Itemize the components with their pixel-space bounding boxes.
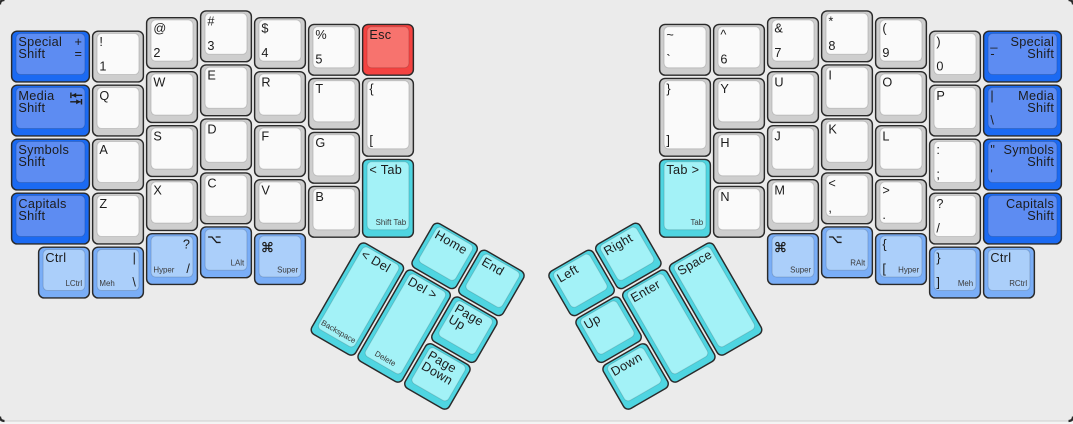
svg-text:Ctrl: Ctrl — [990, 251, 1011, 265]
svg-text:-: - — [990, 47, 995, 61]
svg-text:E: E — [207, 69, 216, 83]
svg-text:Tab: Tab — [690, 218, 703, 227]
svg-text:Ctrl: Ctrl — [45, 251, 66, 265]
svg-text:/: / — [186, 262, 190, 276]
svg-text:P: P — [936, 89, 945, 103]
svg-text:2: 2 — [153, 46, 160, 60]
svg-text:I: I — [828, 69, 832, 83]
svg-text:3: 3 — [207, 39, 214, 53]
svg-text:N: N — [720, 190, 729, 204]
svg-text:[: [ — [369, 134, 373, 148]
svg-text:#: # — [207, 15, 214, 29]
svg-text:J: J — [774, 129, 781, 143]
svg-text:O: O — [882, 75, 892, 89]
svg-text:Shift: Shift — [18, 155, 45, 169]
svg-text:7: 7 — [774, 46, 781, 60]
svg-text:<: < — [828, 177, 836, 191]
svg-text:RAlt: RAlt — [850, 259, 866, 268]
svg-text:!: ! — [99, 35, 103, 49]
svg-text:(: ( — [882, 21, 887, 35]
svg-text:4: 4 — [261, 46, 268, 60]
svg-text:< Tab: < Tab — [369, 163, 402, 177]
svg-text:Q: Q — [99, 89, 109, 103]
svg-text:Meh: Meh — [958, 279, 973, 288]
svg-text:[: [ — [882, 262, 886, 276]
svg-text:C: C — [207, 177, 216, 191]
svg-text:\: \ — [990, 113, 994, 127]
svg-text:}: } — [936, 251, 941, 265]
svg-text:Shift: Shift — [18, 47, 45, 61]
svg-text:?: ? — [936, 197, 943, 211]
svg-text:L: L — [882, 129, 889, 143]
svg-text:~: ~ — [666, 28, 674, 42]
svg-text:/: / — [936, 221, 940, 235]
svg-text:*: * — [828, 15, 833, 29]
svg-text:R: R — [261, 75, 270, 89]
svg-text:`: ` — [666, 53, 671, 67]
svg-text:Meh: Meh — [99, 279, 114, 288]
svg-text:B: B — [315, 190, 324, 204]
svg-text:{: { — [882, 237, 887, 251]
svg-text:Y: Y — [720, 82, 729, 96]
svg-text:LCtrl: LCtrl — [66, 279, 83, 288]
svg-text:H: H — [720, 136, 729, 150]
svg-text:Super: Super — [277, 265, 298, 274]
svg-text:LAlt: LAlt — [231, 259, 245, 268]
svg-text:G: G — [315, 136, 325, 150]
svg-text:?: ? — [183, 237, 190, 251]
svg-text:]: ] — [666, 134, 670, 148]
svg-text:|: | — [133, 251, 137, 265]
svg-text:6: 6 — [720, 53, 727, 67]
svg-text:{: { — [369, 82, 374, 96]
svg-text:=: = — [74, 47, 82, 61]
svg-text:,: , — [828, 201, 832, 215]
svg-text:A: A — [99, 143, 108, 157]
svg-text:%: % — [315, 28, 327, 42]
svg-text:}: } — [666, 82, 671, 96]
svg-text:Shift: Shift — [18, 209, 45, 223]
svg-text:W: W — [153, 75, 165, 89]
svg-text:Shift: Shift — [18, 101, 45, 115]
svg-text:": " — [990, 143, 995, 157]
svg-text:.: . — [882, 208, 886, 222]
svg-text:1: 1 — [99, 59, 106, 73]
svg-text:Hyper: Hyper — [898, 265, 919, 274]
svg-text:K: K — [828, 123, 837, 137]
svg-text:Shift Tab: Shift Tab — [376, 218, 407, 227]
svg-text:Hyper: Hyper — [153, 265, 174, 274]
svg-text:V: V — [261, 183, 270, 197]
svg-text:M: M — [774, 183, 785, 197]
svg-text:': ' — [990, 167, 993, 181]
svg-text:Esc: Esc — [369, 28, 391, 42]
svg-text:X: X — [153, 183, 162, 197]
svg-text:]: ] — [936, 275, 940, 289]
svg-text:>: > — [882, 183, 890, 197]
svg-text:|: | — [990, 89, 994, 103]
svg-text:Shift: Shift — [1027, 155, 1054, 169]
svg-text:9: 9 — [882, 46, 889, 60]
svg-text:\: \ — [132, 275, 136, 289]
svg-text:Shift: Shift — [1027, 101, 1054, 115]
svg-text:T: T — [315, 82, 323, 96]
svg-text:Super: Super — [790, 265, 811, 274]
svg-text:8: 8 — [828, 39, 835, 53]
svg-text:): ) — [936, 35, 941, 49]
svg-text:Tab >: Tab > — [666, 163, 699, 177]
svg-text:U: U — [774, 75, 783, 89]
svg-text:F: F — [261, 129, 269, 143]
svg-text:&: & — [774, 21, 783, 35]
svg-text:D: D — [207, 123, 216, 137]
svg-text:Shift: Shift — [1027, 209, 1054, 223]
svg-text::: : — [936, 143, 940, 157]
svg-text:$: $ — [261, 21, 268, 35]
svg-text:S: S — [153, 129, 162, 143]
svg-text:@: @ — [153, 21, 166, 35]
svg-text:^: ^ — [720, 28, 726, 42]
svg-text:RCtrl: RCtrl — [1009, 279, 1027, 288]
svg-text:Z: Z — [99, 197, 107, 211]
svg-text:5: 5 — [315, 53, 322, 67]
svg-text:0: 0 — [936, 59, 943, 73]
svg-text:;: ; — [936, 167, 940, 181]
svg-text:Shift: Shift — [1027, 47, 1054, 61]
